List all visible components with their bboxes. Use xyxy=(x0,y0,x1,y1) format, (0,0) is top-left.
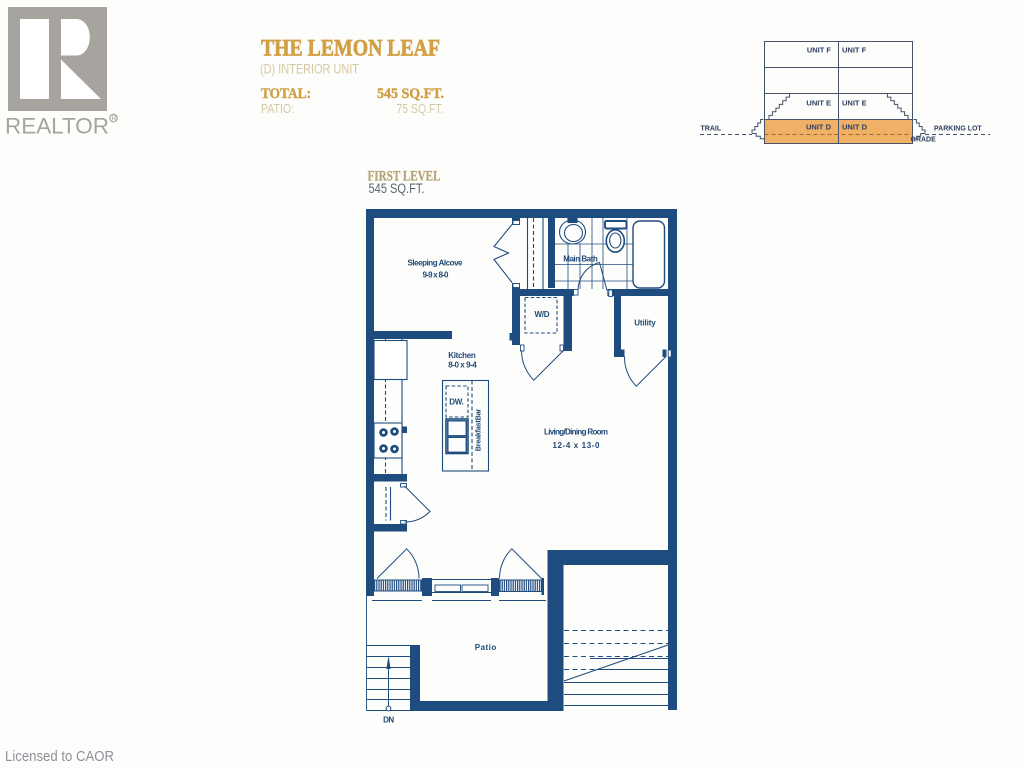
svg-text:9-9 x 8-0: 9-9 x 8-0 xyxy=(423,271,450,280)
svg-text:Utility: Utility xyxy=(634,319,656,328)
svg-text:Licensed to CAOR: Licensed to CAOR xyxy=(5,749,114,765)
svg-text:UNIT E: UNIT E xyxy=(806,99,831,108)
svg-text:545 SQ.FT.: 545 SQ.FT. xyxy=(369,181,425,196)
svg-text:75 SQ.FT.: 75 SQ.FT. xyxy=(397,102,444,116)
svg-text:Kitchen: Kitchen xyxy=(448,351,476,360)
svg-text:UNIT E: UNIT E xyxy=(842,99,867,108)
svg-text:(D) INTERIOR UNIT: (D) INTERIOR UNIT xyxy=(260,62,359,77)
svg-text:DW.: DW. xyxy=(449,398,464,407)
svg-text:UNIT F: UNIT F xyxy=(842,46,867,55)
svg-text:TRAIL: TRAIL xyxy=(701,126,722,133)
svg-text:Main Bath: Main Bath xyxy=(563,255,598,264)
svg-text:UNIT F: UNIT F xyxy=(807,46,832,55)
svg-text:Patio: Patio xyxy=(475,643,497,652)
svg-text:GRADE: GRADE xyxy=(911,137,937,144)
svg-text:12-4 x 13-0: 12-4 x 13-0 xyxy=(553,441,601,450)
svg-text:R: R xyxy=(111,114,117,123)
svg-text:8-0 x 9-4: 8-0 x 9-4 xyxy=(448,361,477,370)
svg-text:545 SQ.FT.: 545 SQ.FT. xyxy=(377,86,444,102)
svg-text:REALTOR: REALTOR xyxy=(5,114,109,139)
svg-text:TOTAL:: TOTAL: xyxy=(261,86,311,102)
svg-text:UNIT D: UNIT D xyxy=(806,123,832,132)
svg-text:BreakfastBar: BreakfastBar xyxy=(474,409,483,452)
svg-text:UNIT D: UNIT D xyxy=(842,123,868,132)
svg-text:W/D: W/D xyxy=(535,310,550,319)
svg-text:PATIO:: PATIO: xyxy=(261,102,294,116)
svg-text:Living/Dining Room: Living/Dining Room xyxy=(544,428,608,437)
svg-text:DN: DN xyxy=(383,716,394,725)
svg-text:Sleeping Alcove: Sleeping Alcove xyxy=(408,259,464,268)
svg-text:PARKING LOT: PARKING LOT xyxy=(934,126,982,133)
svg-text:THE LEMON LEAF: THE LEMON LEAF xyxy=(261,36,440,61)
